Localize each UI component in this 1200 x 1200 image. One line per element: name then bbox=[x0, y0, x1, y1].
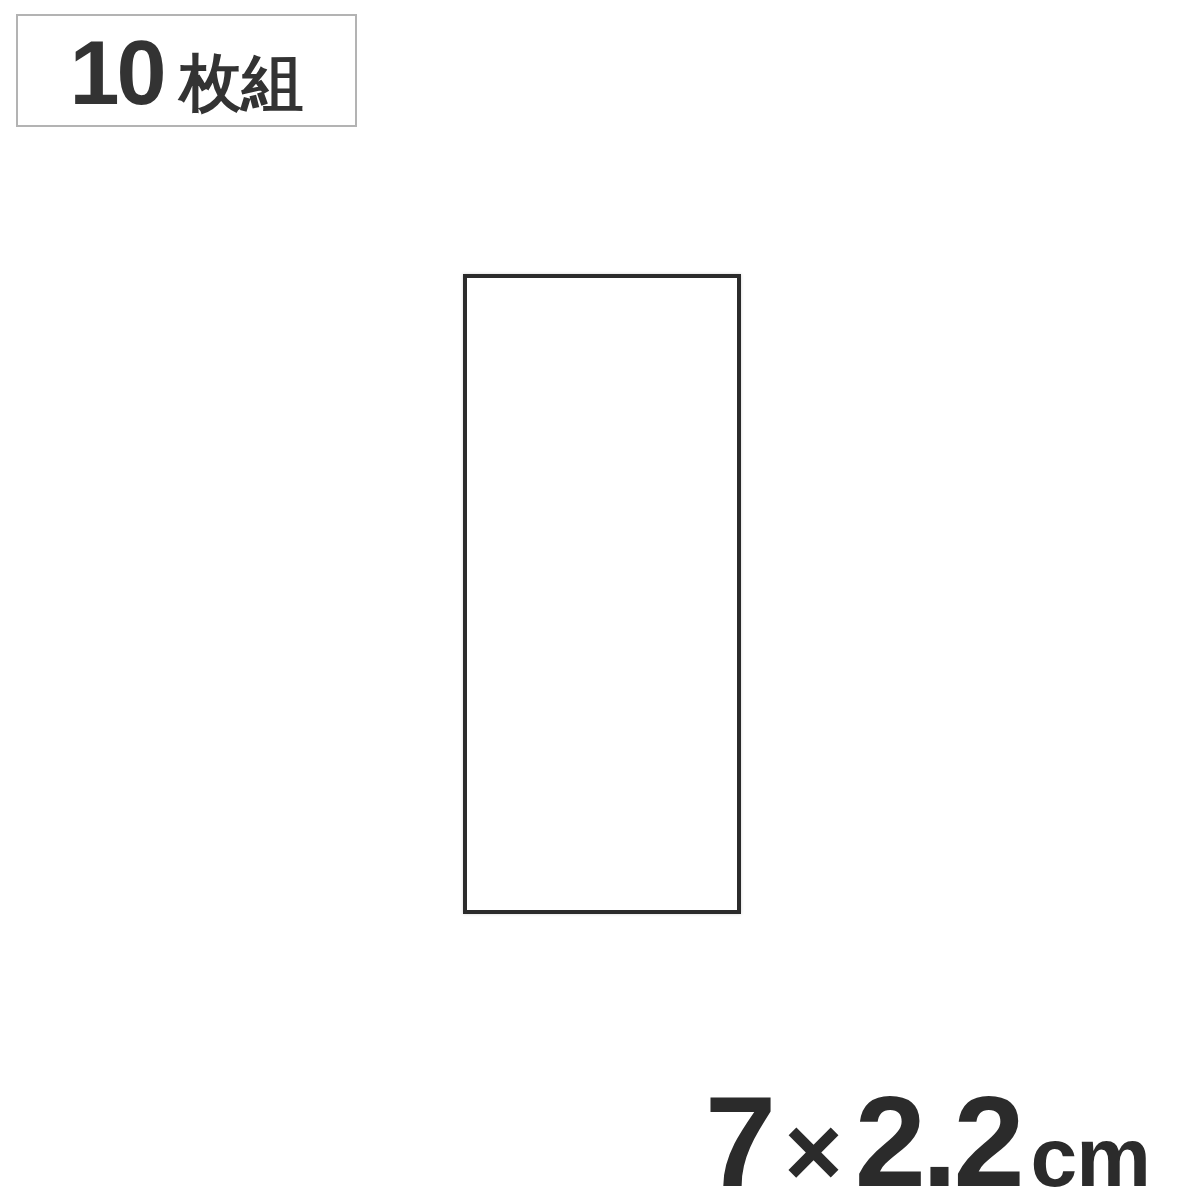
size-height-value: 2.2 bbox=[855, 1078, 1021, 1200]
quantity-value: 10 bbox=[69, 28, 163, 118]
quantity-badge: 10 枚組 bbox=[16, 14, 357, 127]
product-label-rectangle bbox=[463, 274, 741, 914]
size-unit-label: cm bbox=[1031, 1115, 1150, 1199]
multiply-sign: × bbox=[784, 1101, 842, 1200]
size-annotation: 7 × 2.2 cm bbox=[705, 1078, 1150, 1200]
size-width-value: 7 bbox=[705, 1078, 772, 1200]
quantity-unit-label: 枚組 bbox=[180, 52, 304, 114]
